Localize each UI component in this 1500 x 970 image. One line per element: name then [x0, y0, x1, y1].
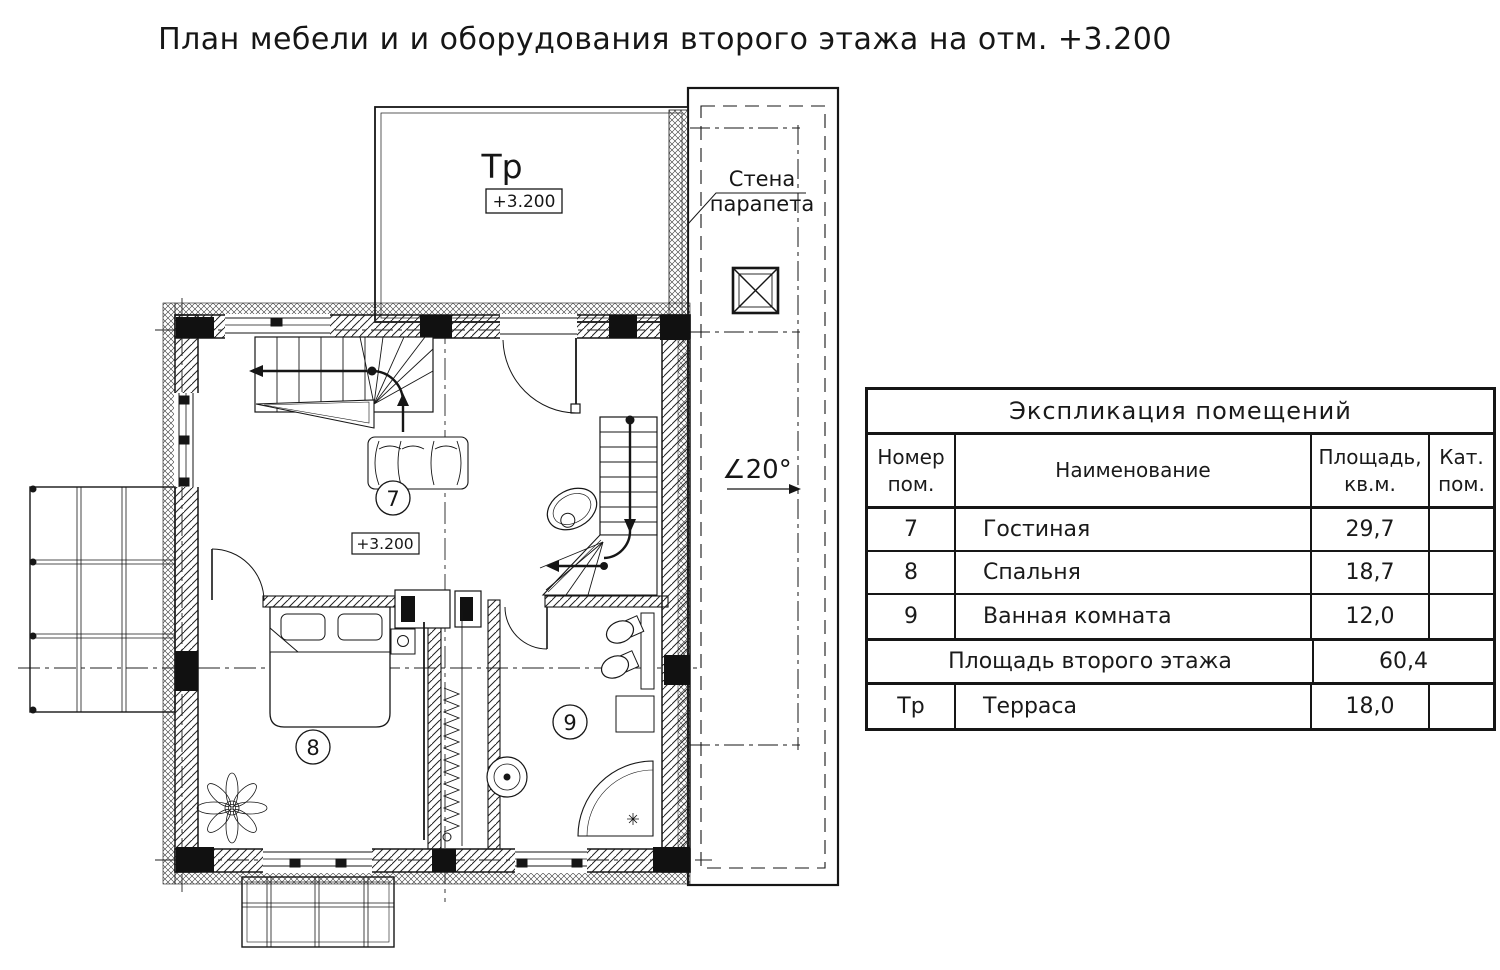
row-name: Ванная комната [956, 595, 1312, 638]
window-bottom-bedroom [263, 848, 372, 873]
room8-label: 8 [296, 730, 330, 764]
roof-slope-label: ∠20° [722, 455, 791, 485]
chimney-symbol [733, 268, 778, 313]
summary-area: 60,4 [1314, 641, 1493, 682]
water-heater [487, 757, 527, 797]
sofa [368, 437, 468, 489]
table-row-terrace: Тр Терраса 18,0 [868, 685, 1493, 728]
room9-label: 9 [553, 705, 587, 739]
terrace-area: Тр +3.200 [375, 107, 688, 322]
row-name: Гостиная [956, 509, 1312, 550]
stair-up [249, 337, 433, 432]
row-number: 9 [868, 595, 956, 638]
roof-strip: Стена парапета ∠20° [688, 88, 838, 885]
row-area: 12,0 [1312, 595, 1430, 638]
door-terrace-opening [500, 314, 577, 339]
room7-number: 7 [386, 487, 399, 511]
row-name: Спальня [956, 552, 1312, 593]
nightstand [391, 629, 415, 654]
door-bathroom [505, 607, 547, 649]
row-area: 18,7 [1312, 552, 1430, 593]
table-row: 8 Спальня 18,7 [868, 552, 1493, 595]
room8-number: 8 [306, 736, 319, 760]
schedule-title: Экспликация помещений [868, 390, 1493, 435]
room7-elevation: +3.200 [356, 535, 413, 553]
header-number-line2: пом. [888, 471, 935, 498]
row-number: Тр [868, 685, 956, 728]
parapet-note-line2: парапета [710, 192, 815, 216]
door-terrace [503, 338, 580, 413]
room7-elevation-mark: +3.200 [352, 533, 419, 554]
window-bottom-bath [515, 848, 587, 873]
room-schedule-table: Экспликация помещений Номер пом. Наимено… [865, 387, 1496, 731]
bidet [598, 648, 639, 682]
header-area: Площадь, кв.м. [1312, 435, 1430, 506]
row-category [1430, 509, 1493, 550]
row-area: 18,0 [1312, 685, 1430, 728]
header-area-line2: кв.м. [1344, 471, 1396, 498]
schedule-header-row: Номер пом. Наименование Площадь, кв.м. К… [868, 435, 1493, 509]
canopy-left [30, 486, 176, 714]
bed [270, 607, 390, 727]
canopy-bottom [242, 877, 394, 947]
corner-shower [578, 761, 653, 836]
window-top [225, 314, 330, 339]
header-area-line1: Площадь, [1318, 444, 1421, 471]
room9-number: 9 [563, 711, 576, 735]
row-category [1430, 685, 1493, 728]
drawing-sheet: План мебели и и оборудования второго эта… [0, 0, 1500, 970]
header-name: Наименование [956, 435, 1312, 506]
header-category-line1: Кат. [1439, 444, 1483, 471]
header-name-label: Наименование [1055, 457, 1210, 484]
row-number: 8 [868, 552, 956, 593]
plant [197, 773, 267, 843]
table-row: 7 Гостиная 29,7 [868, 509, 1493, 552]
terrace-elevation-mark: +3.200 [486, 189, 562, 213]
header-number-line1: Номер [877, 444, 944, 471]
header-category: Кат. пом. [1430, 435, 1493, 506]
washbasin [540, 480, 604, 538]
parapet-note-line1: Стена [729, 167, 795, 191]
vent-shafts [395, 590, 481, 628]
toilet [603, 613, 644, 647]
row-name: Терраса [956, 685, 1312, 728]
terrace-elevation: +3.200 [493, 192, 556, 212]
summary-label: Площадь второго этажа [868, 641, 1314, 682]
room7-label: 7 [376, 481, 410, 515]
washing-machine [616, 696, 654, 732]
row-category [1430, 595, 1493, 638]
installation-panel [641, 613, 654, 689]
clothes-hangers-icon [444, 688, 459, 832]
header-category-line2: пом. [1438, 471, 1485, 498]
row-area: 29,7 [1312, 509, 1430, 550]
window-left [174, 393, 199, 487]
table-row: 9 Ванная комната 12,0 [868, 595, 1493, 638]
row-number: 7 [868, 509, 956, 550]
row-category [1430, 552, 1493, 593]
terrace-label: Тр [480, 147, 522, 186]
door-bedroom [212, 549, 264, 601]
summary-row: Площадь второго этажа 60,4 [868, 638, 1493, 685]
header-number: Номер пом. [868, 435, 956, 506]
parapet-wall [669, 110, 688, 322]
